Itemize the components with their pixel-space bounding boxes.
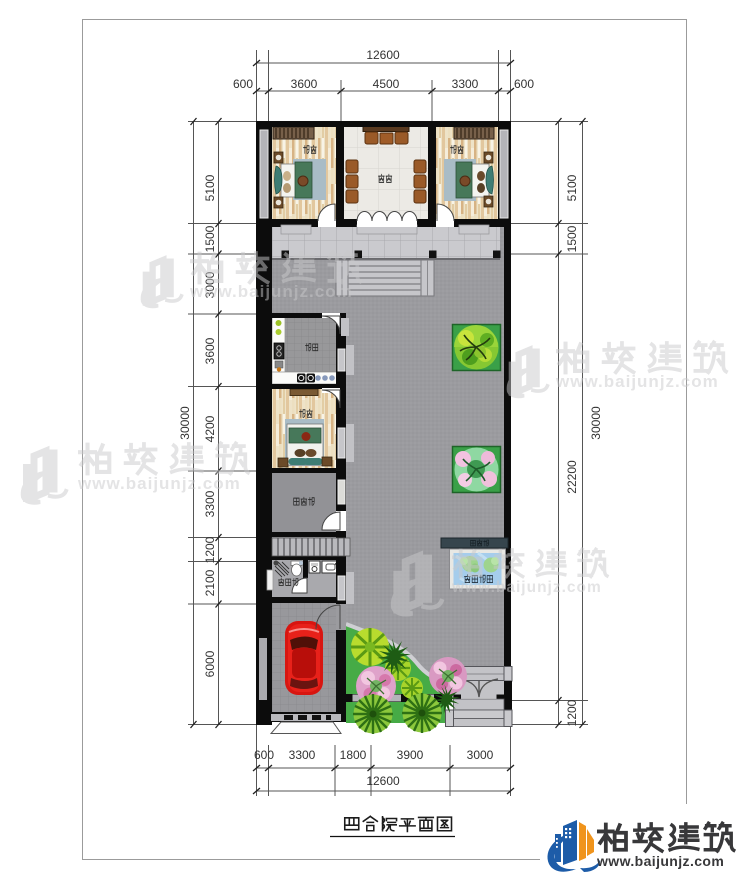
svg-text:3300: 3300	[289, 748, 316, 762]
svg-text:1200: 1200	[203, 536, 217, 563]
svg-text:5100: 5100	[203, 174, 217, 201]
svg-text:1800: 1800	[340, 748, 367, 762]
svg-text:4500: 4500	[373, 77, 400, 91]
svg-text:30000: 30000	[178, 406, 192, 440]
svg-text:2100: 2100	[203, 569, 217, 596]
svg-text:3600: 3600	[203, 337, 217, 364]
svg-text:30000: 30000	[589, 406, 603, 440]
svg-text:www.baijunjz.com: www.baijunjz.com	[596, 853, 724, 869]
svg-text:600: 600	[254, 748, 274, 762]
svg-text:6000: 6000	[203, 650, 217, 677]
svg-text:1500: 1500	[565, 225, 579, 252]
svg-text:1200: 1200	[565, 699, 579, 726]
svg-text:3900: 3900	[397, 748, 424, 762]
svg-text:www.baijunjz.com: www.baijunjz.com	[189, 282, 353, 301]
svg-text:3600: 3600	[291, 77, 318, 91]
svg-text:3300: 3300	[452, 77, 479, 91]
svg-text:4200: 4200	[203, 415, 217, 442]
svg-text:1500: 1500	[203, 225, 217, 252]
svg-text:www.baijunjz.com: www.baijunjz.com	[451, 579, 602, 596]
svg-text:www.baijunjz.com: www.baijunjz.com	[555, 372, 719, 391]
svg-text:5100: 5100	[565, 174, 579, 201]
svg-text:600: 600	[514, 77, 534, 91]
svg-text:600: 600	[233, 77, 253, 91]
svg-text:3300: 3300	[203, 490, 217, 517]
svg-text:3000: 3000	[467, 748, 494, 762]
svg-text:12600: 12600	[366, 48, 400, 62]
svg-text:12600: 12600	[366, 774, 400, 788]
svg-text:www.baijunjz.com: www.baijunjz.com	[77, 474, 241, 493]
svg-text:22200: 22200	[565, 460, 579, 494]
